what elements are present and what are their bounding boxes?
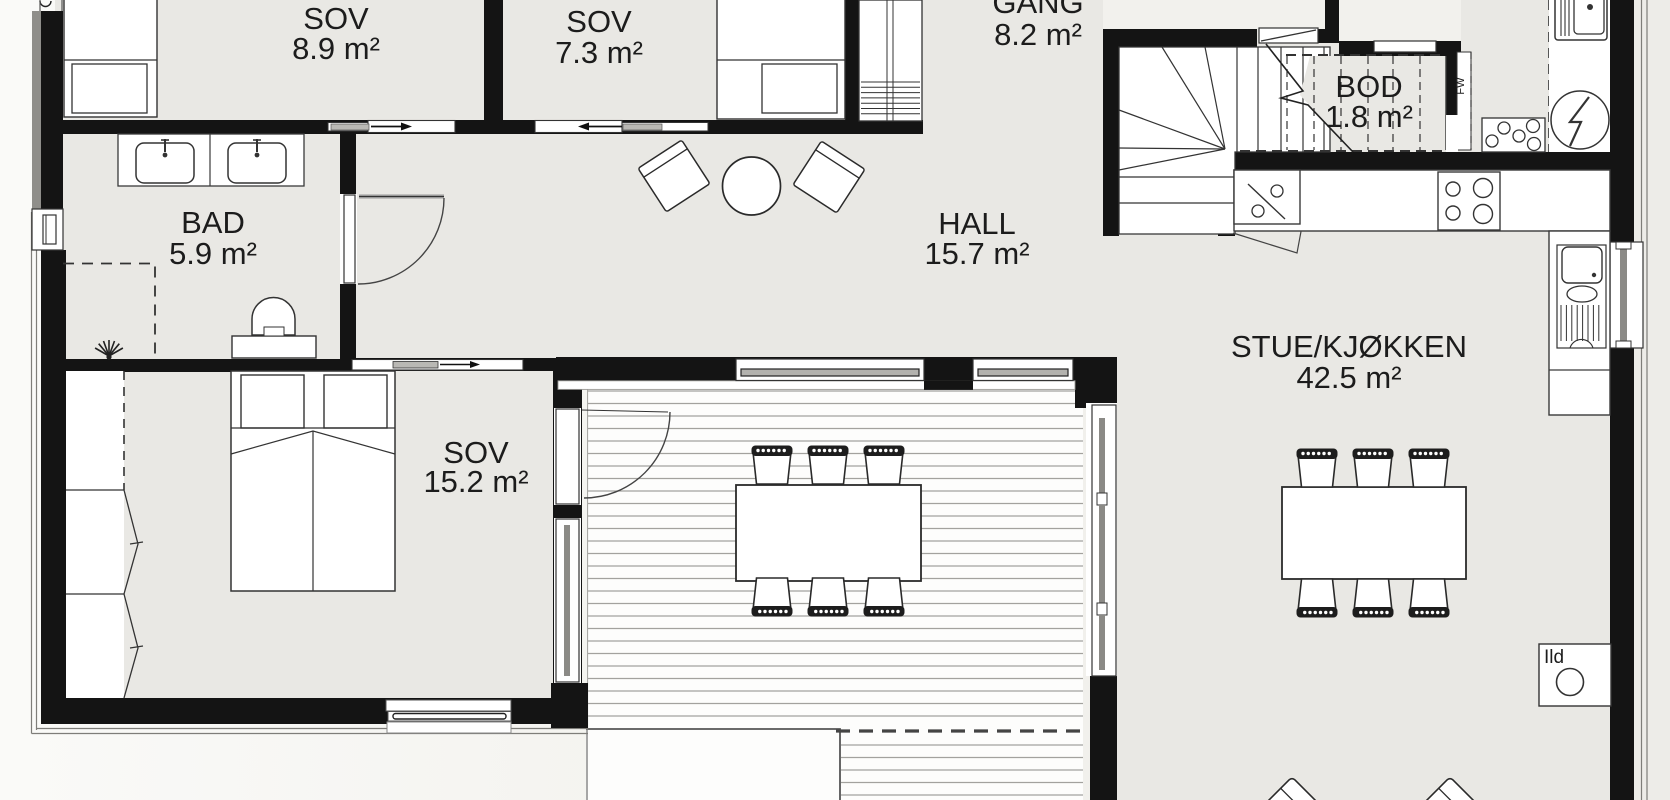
svg-text:SOV: SOV xyxy=(566,4,632,39)
svg-text:42.5 m²: 42.5 m² xyxy=(1296,360,1401,395)
svg-text:BAD: BAD xyxy=(181,205,245,240)
svg-text:8.2 m²: 8.2 m² xyxy=(994,17,1082,52)
svg-text:STUE/KJØKKEN: STUE/KJØKKEN xyxy=(1231,329,1467,364)
svg-text:15.2 m²: 15.2 m² xyxy=(423,464,528,499)
svg-text:1.8 m²: 1.8 m² xyxy=(1325,99,1413,134)
svg-text:FW: FW xyxy=(1455,77,1467,95)
svg-text:Ild: Ild xyxy=(1544,647,1564,668)
svg-text:8.9 m²: 8.9 m² xyxy=(292,31,380,66)
svg-text:5.9 m²: 5.9 m² xyxy=(169,236,257,271)
svg-text:7.3 m²: 7.3 m² xyxy=(555,35,643,70)
svg-text:15.7 m²: 15.7 m² xyxy=(924,236,1029,271)
